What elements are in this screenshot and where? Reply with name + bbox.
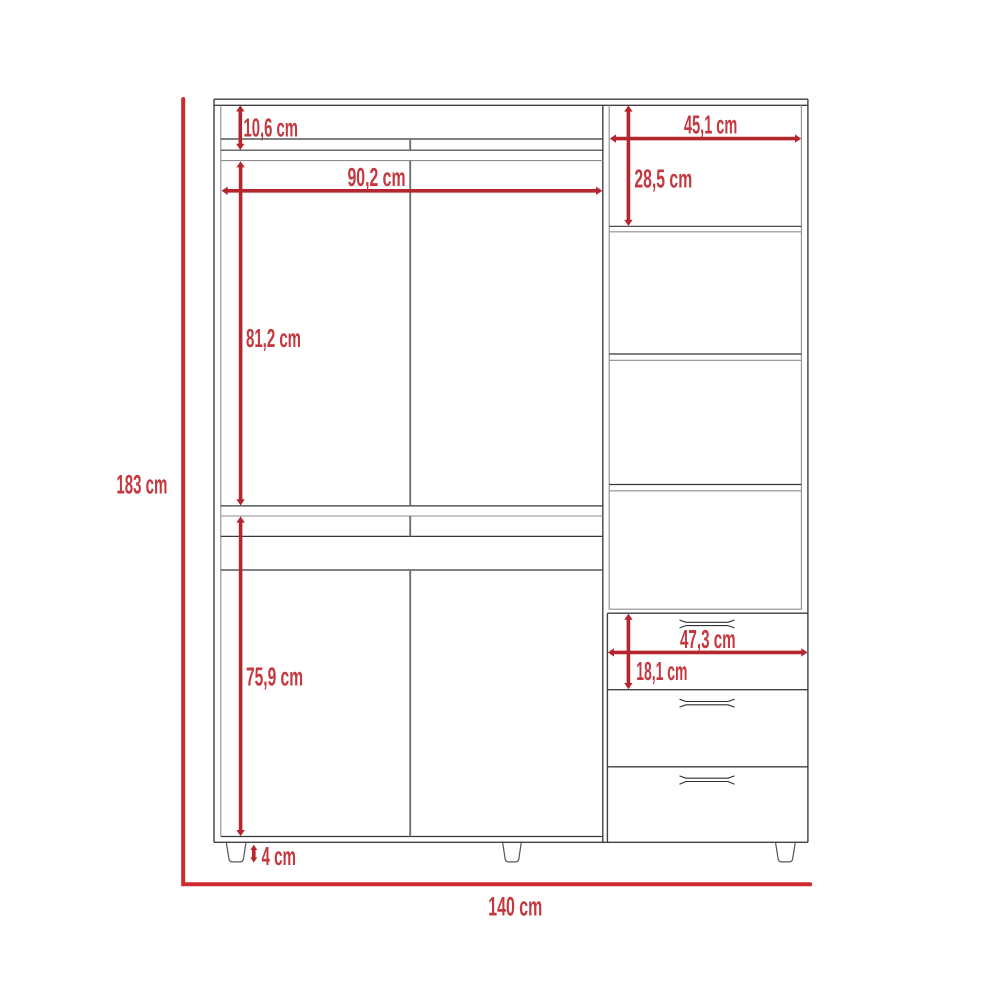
svg-text:18,1 cm: 18,1 cm [636, 656, 687, 686]
svg-text:81,2 cm: 81,2 cm [246, 323, 301, 353]
svg-text:47,3 cm: 47,3 cm [680, 624, 736, 654]
svg-text:10,6 cm: 10,6 cm [244, 112, 299, 142]
svg-text:4 cm: 4 cm [262, 841, 297, 871]
svg-text:28,5 cm: 28,5 cm [634, 164, 692, 194]
svg-text:183 cm: 183 cm [116, 468, 167, 499]
svg-text:45,1 cm: 45,1 cm [684, 109, 737, 139]
svg-text:75,9 cm: 75,9 cm [246, 662, 303, 692]
svg-text:90,2 cm: 90,2 cm [348, 162, 406, 192]
svg-text:140 cm: 140 cm [488, 891, 542, 922]
